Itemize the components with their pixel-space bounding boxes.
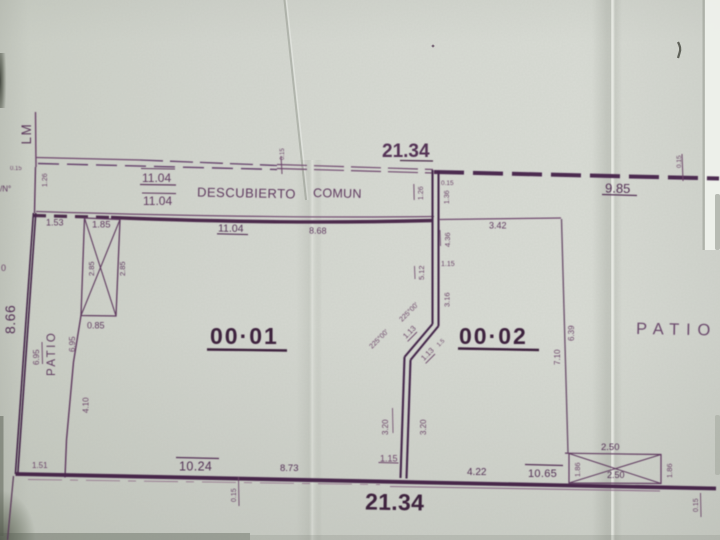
svg-text:00·01: 00·01 bbox=[210, 323, 279, 349]
svg-text:1.26: 1.26 bbox=[418, 186, 425, 200]
svg-text:6.95: 6.95 bbox=[68, 336, 77, 352]
svg-text:1.53: 1.53 bbox=[46, 218, 64, 228]
svg-text:LM: LM bbox=[19, 123, 34, 145]
svg-text:7.10: 7.10 bbox=[553, 349, 562, 365]
svg-text:0.15: 0.15 bbox=[441, 180, 454, 187]
svg-text:3.16: 3.16 bbox=[443, 292, 452, 307]
svg-text:3.20: 3.20 bbox=[381, 419, 390, 435]
svg-text:0.15: 0.15 bbox=[693, 498, 700, 512]
svg-text:10.24: 10.24 bbox=[179, 460, 212, 474]
svg-text:0.15: 0.15 bbox=[231, 488, 238, 502]
svg-text:4.10: 4.10 bbox=[82, 397, 91, 413]
svg-text:0.15: 0.15 bbox=[10, 166, 22, 172]
svg-text:2.50: 2.50 bbox=[607, 470, 625, 480]
svg-text:4.36: 4.36 bbox=[443, 232, 452, 247]
svg-text:11.04: 11.04 bbox=[143, 194, 172, 208]
svg-text:1.26: 1.26 bbox=[42, 173, 49, 187]
svg-text:11.04: 11.04 bbox=[218, 223, 244, 235]
svg-text:PATIO: PATIO bbox=[46, 331, 58, 376]
svg-text:3.20: 3.20 bbox=[419, 419, 428, 435]
svg-text:0.15: 0.15 bbox=[280, 148, 286, 160]
svg-text:21.34: 21.34 bbox=[382, 141, 430, 162]
svg-text:5.12: 5.12 bbox=[417, 265, 426, 280]
svg-text:PATIO: PATIO bbox=[636, 320, 717, 339]
svg-text:2.50: 2.50 bbox=[601, 442, 620, 453]
svg-text:8.73: 8.73 bbox=[280, 463, 299, 474]
svg-text:4.22: 4.22 bbox=[467, 467, 487, 478]
svg-text:00·02: 00·02 bbox=[459, 323, 528, 349]
svg-text:3.42: 3.42 bbox=[489, 221, 507, 231]
svg-text:1.86: 1.86 bbox=[665, 463, 674, 478]
svg-text:/N°: /N° bbox=[0, 185, 11, 194]
svg-text:0: 0 bbox=[1, 263, 6, 273]
svg-text:1.86: 1.86 bbox=[573, 462, 582, 477]
svg-text:0.85: 0.85 bbox=[87, 321, 105, 331]
svg-text:11.04: 11.04 bbox=[142, 171, 171, 185]
svg-text:10.65: 10.65 bbox=[528, 468, 557, 480]
svg-text:6.95: 6.95 bbox=[32, 349, 41, 365]
svg-text:6.39: 6.39 bbox=[567, 325, 576, 341]
svg-text:1.51: 1.51 bbox=[32, 461, 48, 470]
svg-text:DESCUBIERTO: DESCUBIERTO bbox=[197, 185, 296, 202]
svg-text:0.15: 0.15 bbox=[676, 155, 683, 168]
svg-text:9.85: 9.85 bbox=[605, 181, 631, 196]
svg-text:1.85: 1.85 bbox=[92, 220, 111, 231]
svg-text:8.68: 8.68 bbox=[309, 226, 327, 236]
svg-text:21.34: 21.34 bbox=[365, 489, 424, 516]
svg-text:2.85: 2.85 bbox=[87, 261, 96, 276]
svg-text:2.85: 2.85 bbox=[118, 261, 127, 276]
svg-text:1.15: 1.15 bbox=[441, 261, 455, 268]
svg-text:1.36: 1.36 bbox=[444, 190, 451, 204]
svg-text:COMUN: COMUN bbox=[313, 186, 362, 201]
svg-text:8.66: 8.66 bbox=[2, 305, 18, 334]
svg-text:1.15: 1.15 bbox=[380, 454, 398, 464]
